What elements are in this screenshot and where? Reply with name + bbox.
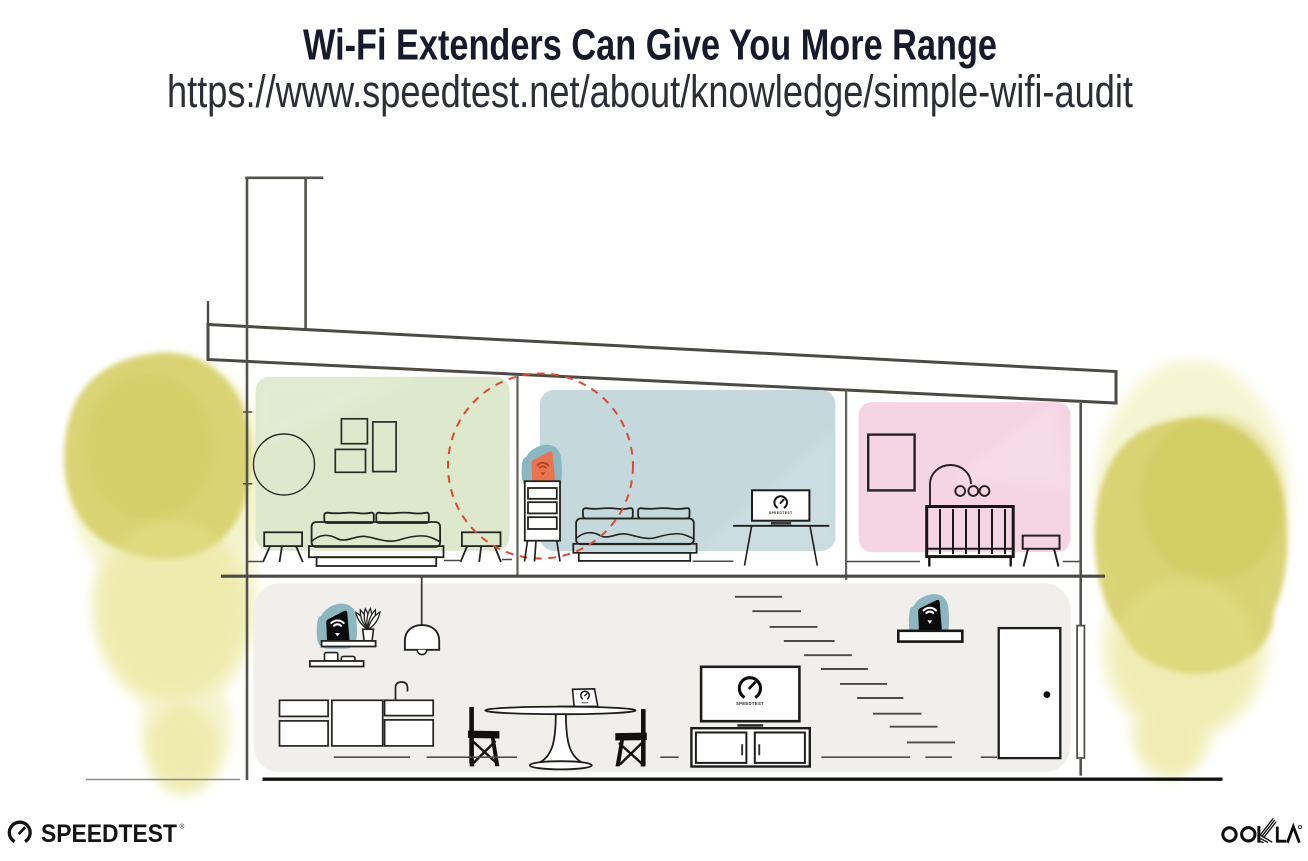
svg-text:®: ® [180, 823, 185, 831]
svg-text:https://www.speedtest.net/abou: https://www.speedtest.net/about/knowledg… [167, 66, 1133, 117]
svg-text:SPEEDTEST: SPEEDTEST [41, 821, 177, 848]
svg-text:SPEEDTEST: SPEEDTEST [736, 701, 764, 706]
svg-text:SPEEDTEST: SPEEDTEST [769, 511, 793, 515]
svg-text:Wi-Fi Extenders Can Give You M: Wi-Fi Extenders Can Give You More Range [303, 21, 997, 70]
